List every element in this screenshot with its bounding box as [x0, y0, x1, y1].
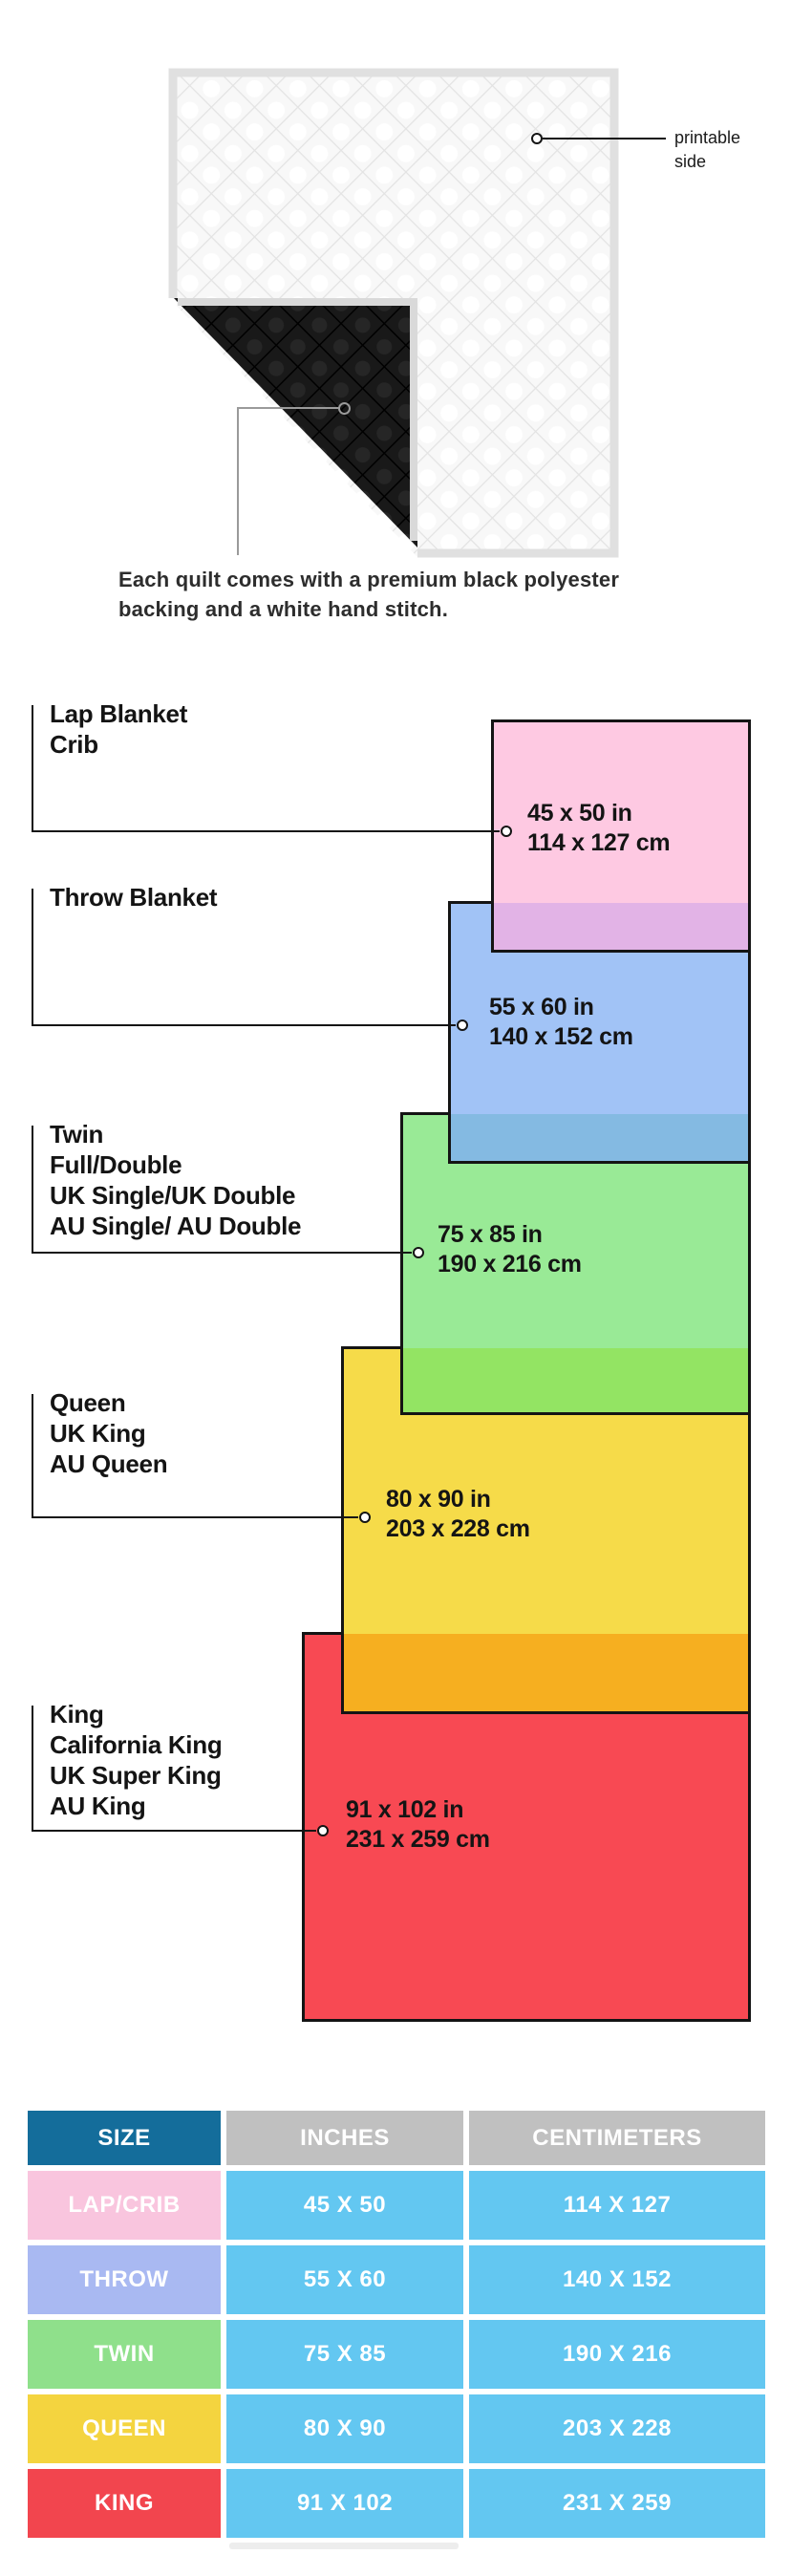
table-row-twin-size: TWIN	[28, 2320, 221, 2389]
throw-dimensions: 55 x 60 in 140 x 152 cm	[489, 993, 633, 1052]
queen-border-bottom	[341, 1711, 751, 1714]
printable-callout-line	[543, 138, 666, 140]
lap-callout-marker	[501, 826, 512, 837]
lap-border-left	[491, 719, 494, 953]
table-row-king-inches: 91 X 102	[226, 2469, 463, 2538]
size-table: SIZE INCHES CENTIMETERS LAP/CRIB 45 X 50…	[28, 2111, 765, 2538]
backing-callout-marker	[338, 402, 351, 415]
king-callout-marker	[317, 1825, 329, 1836]
queen-dimensions: 80 x 90 in 203 x 228 cm	[386, 1485, 530, 1544]
king-border-top	[302, 1632, 344, 1635]
infographic-canvas: printable side Each quilt comes with a p…	[0, 0, 791, 2576]
backing-callout-line-h	[237, 407, 339, 409]
lap-callout-hline	[32, 830, 500, 832]
table-row-queen-inches: 80 X 90	[226, 2394, 463, 2463]
table-header-size: SIZE	[28, 2111, 221, 2165]
lap-throw-overlap	[491, 903, 751, 953]
table-row-queen-cm: 203 X 228	[469, 2394, 765, 2463]
table-row-twin-cm: 190 X 216	[469, 2320, 765, 2389]
table-row-king-cm: 231 X 259	[469, 2469, 765, 2538]
twin-border-bottom	[400, 1412, 751, 1415]
table-row-twin-inches: 75 X 85	[226, 2320, 463, 2389]
quilt-caption: Each quilt comes with a premium black po…	[118, 565, 619, 624]
lap-label: Lap Blanket Crib	[50, 698, 187, 760]
table-row-throw-size: THROW	[28, 2245, 221, 2314]
twin-callout-hline	[32, 1252, 412, 1254]
king-callout-vline	[32, 1706, 33, 1831]
table-row-king-size: KING	[28, 2469, 221, 2538]
lap-callout-vline	[32, 705, 33, 832]
printable-callout-marker	[531, 133, 543, 144]
table-header-inches: INCHES	[226, 2111, 463, 2165]
queen-label: Queen UK King AU Queen	[50, 1387, 167, 1479]
throw-callout-marker	[457, 1020, 468, 1031]
queen-king-overlap	[341, 1634, 751, 1714]
king-border-left	[302, 1632, 305, 2022]
table-shadow	[229, 2543, 459, 2549]
twin-border-top	[400, 1112, 451, 1115]
table-header-centimeters: CENTIMETERS	[469, 2111, 765, 2165]
queen-border-left	[341, 1346, 344, 1714]
rects-right-border	[748, 719, 751, 2022]
queen-border-top	[341, 1346, 403, 1349]
twin-rect-sliver	[400, 1114, 448, 1164]
king-rect-sliver	[302, 1634, 341, 1714]
twin-callout-vline	[32, 1126, 33, 1254]
twin-border-left	[400, 1112, 403, 1415]
queen-callout-hline	[32, 1516, 358, 1518]
king-label: King California King UK Super King AU Ki…	[50, 1699, 222, 1821]
queen-rect-sliver	[341, 1348, 400, 1415]
throw-callout-vline	[32, 889, 33, 1026]
queen-callout-marker	[359, 1512, 371, 1523]
queen-callout-vline	[32, 1394, 33, 1518]
king-dimensions: 91 x 102 in 231 x 259 cm	[346, 1795, 490, 1855]
throw-callout-hline	[32, 1024, 456, 1026]
twin-dimensions: 75 x 85 in 190 x 216 cm	[438, 1220, 582, 1279]
king-rect	[302, 1714, 751, 2022]
table-row-lap-inches: 45 X 50	[226, 2171, 463, 2240]
twin-queen-overlap	[400, 1348, 751, 1415]
quilt-black-backing	[174, 298, 417, 547]
king-callout-hline	[32, 1830, 316, 1832]
throw-border-top	[448, 901, 494, 904]
table-row-queen-size: QUEEN	[28, 2394, 221, 2463]
throw-border-left	[448, 901, 451, 1164]
table-row-throw-inches: 55 X 60	[226, 2245, 463, 2314]
printable-side-label: printable side	[674, 126, 740, 174]
table-row-throw-cm: 140 X 152	[469, 2245, 765, 2314]
twin-callout-marker	[413, 1247, 424, 1258]
table-row-lap-size: LAP/CRIB	[28, 2171, 221, 2240]
lap-border-top	[491, 719, 751, 722]
throw-rect-sliver	[448, 903, 491, 953]
backing-callout-line-v	[237, 407, 239, 555]
throw-label: Throw Blanket	[50, 882, 217, 912]
lap-dimensions: 45 x 50 in 114 x 127 cm	[527, 799, 670, 858]
throw-twin-overlap	[448, 1114, 751, 1164]
king-border-bottom	[302, 2019, 751, 2022]
table-row-lap-cm: 114 X 127	[469, 2171, 765, 2240]
twin-label: Twin Full/Double UK Single/UK Double AU …	[50, 1119, 301, 1241]
throw-border-bottom	[448, 1161, 751, 1164]
lap-border-bottom	[491, 950, 751, 953]
